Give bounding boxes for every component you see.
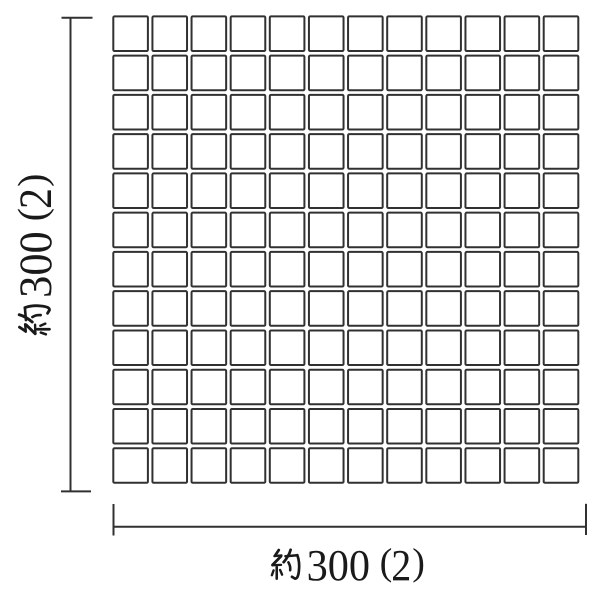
svg-text:): ) [9, 174, 54, 187]
svg-text:2: 2 [391, 541, 411, 590]
svg-text:300: 300 [10, 231, 61, 298]
svg-text:300: 300 [307, 541, 371, 590]
svg-text:2: 2 [10, 188, 61, 209]
svg-text:(: ( [9, 208, 54, 221]
svg-text:): ) [412, 542, 425, 584]
